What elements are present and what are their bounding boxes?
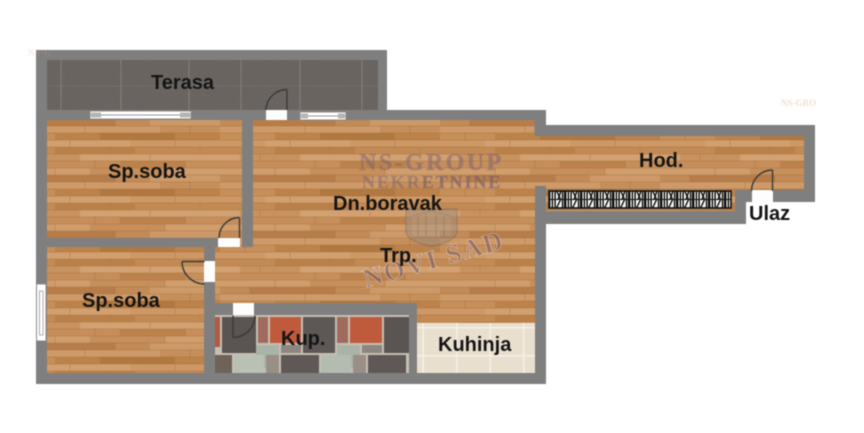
svg-text:Sp.soba: Sp.soba — [82, 290, 161, 312]
svg-text:Trp.: Trp. — [380, 245, 417, 267]
svg-text:Terasa: Terasa — [151, 72, 215, 94]
svg-text:Hod.: Hod. — [639, 150, 683, 172]
svg-text:Dn.boravak: Dn.boravak — [333, 193, 443, 215]
svg-text:Ulaz: Ulaz — [749, 203, 790, 225]
svg-text:NS-G: NS-G — [28, 48, 52, 58]
svg-text:Sp.soba: Sp.soba — [108, 161, 187, 183]
svg-text:Kup.: Kup. — [281, 328, 325, 350]
svg-text:NS-GRO: NS-GRO — [781, 98, 816, 108]
svg-text:ETNINE: ETNINE — [422, 172, 502, 192]
svg-text:Kuhinja: Kuhinja — [438, 334, 512, 356]
